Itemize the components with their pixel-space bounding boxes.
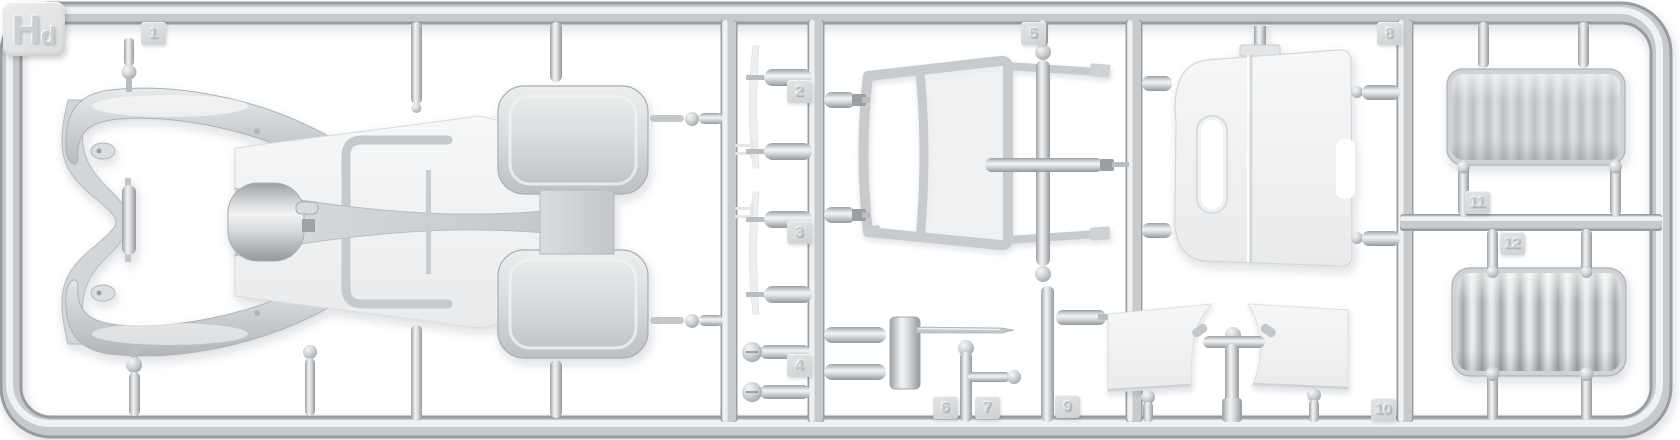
car-body-shell-part [62,86,648,358]
part-tag-4: 4 [787,354,812,377]
part-tag-1: 1 [141,22,166,45]
part-tag-7: 7 [975,396,1000,419]
sprue-label-sub: d [41,24,56,49]
windshield-frame-part [864,61,1111,245]
rear-slab [540,190,614,254]
shock-link-part [122,178,136,262]
part-tag-2: 2 [787,80,812,103]
sprue-render [0,0,1680,440]
roof-notch [1336,139,1355,199]
part-tag-5: 5 [1021,22,1046,45]
part-tag-8: 8 [1377,22,1402,45]
nose-cowl [228,183,304,261]
runner-horizontal-right [1400,214,1662,231]
part-tag-6: 6 [933,396,958,419]
cylinder-part [890,317,920,389]
headlamp-bump-bottom [91,285,115,301]
rear-pontoon-bottom [498,250,648,358]
rear-pontoon-top [498,86,648,194]
seat-back-part [1447,69,1625,165]
roof-slot [1197,116,1227,213]
windshield-divider [920,72,924,241]
part-tag-11: 11 [1465,191,1490,214]
runner-a [721,20,738,422]
fender-liner-right [1248,304,1348,390]
part-tag-10: 10 [1371,398,1396,421]
sprue-photo: { "scene": { "subject": "top-view photo … [0,0,1680,440]
sprue-label-plate: Hd [3,2,65,56]
part-tag-3: 3 [787,221,812,244]
roof-panel-part [1175,26,1355,266]
seat-cushion-part [1452,268,1626,376]
headlamp-bump-top [91,143,115,159]
sprue-label-main: H [12,10,41,50]
fender-liner-left [1108,304,1212,392]
part-tag-9: 9 [1055,395,1080,418]
part-tag-12: 12 [1500,232,1525,255]
